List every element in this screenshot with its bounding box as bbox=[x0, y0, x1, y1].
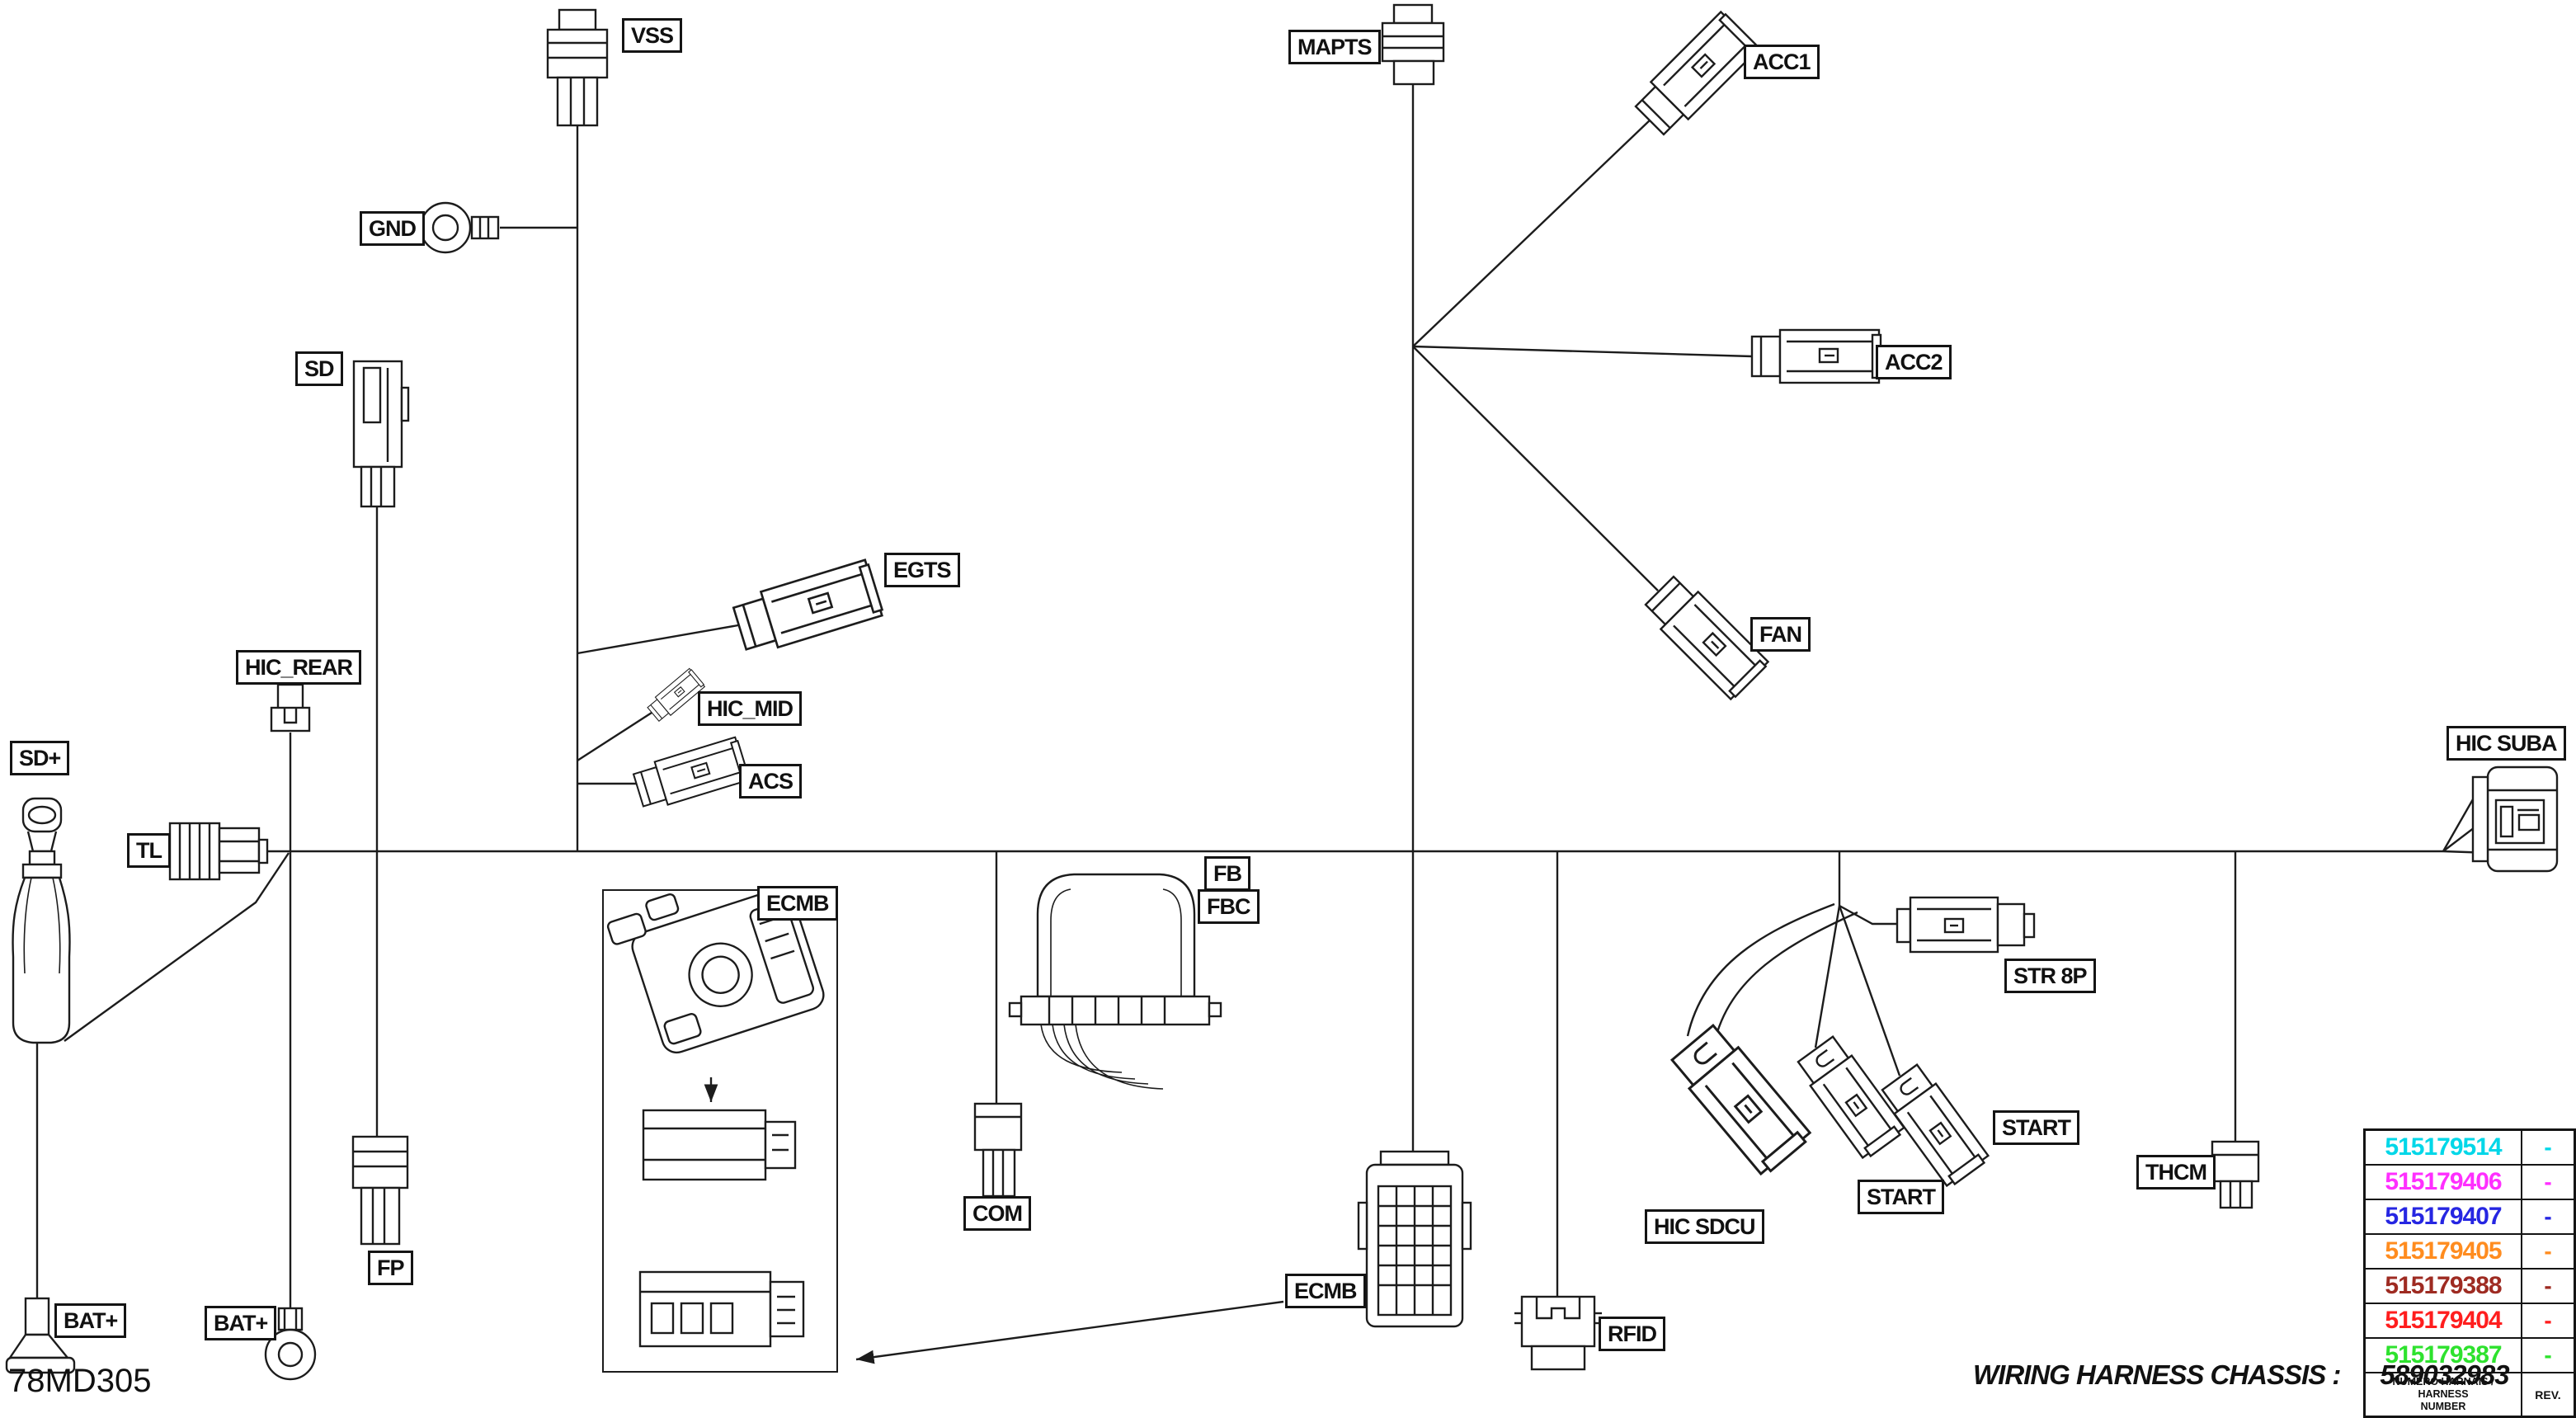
acc1-connector bbox=[1631, 11, 1759, 139]
label-tl: TL bbox=[127, 833, 171, 868]
harness-number: 515179514 bbox=[2366, 1131, 2521, 1164]
label-egts: EGTS bbox=[884, 553, 960, 587]
label-start-1: START bbox=[1993, 1110, 2079, 1145]
parts-table-row: 515179388- bbox=[2366, 1268, 2574, 1303]
rfid-connector bbox=[1514, 1297, 1602, 1369]
ecmb-detail-box bbox=[602, 889, 838, 1373]
wire-sdplus-bus bbox=[64, 853, 289, 1041]
label-acc2: ACC2 bbox=[1876, 345, 1952, 379]
label-ecmb: ECMB bbox=[1285, 1274, 1366, 1308]
sd-plus-terminal bbox=[13, 799, 70, 1043]
wire-sdcu-cable-b bbox=[1714, 912, 1858, 1044]
footer-note: WIRING HARNESS CHASSIS : 589032983 bbox=[1973, 1359, 2509, 1391]
parts-table-row: 515179404- bbox=[2366, 1303, 2574, 1337]
label-sd-plus: SD+ bbox=[10, 741, 69, 775]
wire-fb-cable-4 bbox=[1076, 1025, 1163, 1089]
vss-connector bbox=[548, 10, 607, 125]
ecmb-main-connector bbox=[1359, 1152, 1471, 1326]
harness-number: 515179404 bbox=[2366, 1304, 2521, 1337]
wiring-diagram-page: { "page": { "drawing_code": "78MD305" },… bbox=[0, 0, 2576, 1402]
ecmb-callout-arrow bbox=[856, 1302, 1283, 1359]
label-sd: SD bbox=[295, 351, 343, 386]
rev-header: REV. bbox=[2521, 1373, 2574, 1416]
wire-acc2 bbox=[1413, 346, 1752, 356]
parts-table-row: 515179406- bbox=[2366, 1164, 2574, 1199]
drawing-code: 78MD305 bbox=[8, 1363, 151, 1400]
label-acc1: ACC1 bbox=[1744, 45, 1820, 79]
label-bat-plus-2: BAT+ bbox=[205, 1306, 276, 1340]
header-line2: NUMBER bbox=[2421, 1401, 2466, 1412]
parts-table-row: 515179405- bbox=[2366, 1233, 2574, 1268]
harness-number: 515179388 bbox=[2366, 1270, 2521, 1303]
acc2-connector bbox=[1752, 330, 1881, 383]
rev-value: - bbox=[2521, 1200, 2574, 1233]
parts-table-row: 515179407- bbox=[2366, 1199, 2574, 1233]
harness-number: 515179405 bbox=[2366, 1235, 2521, 1268]
label-hic-mid: HIC_MID bbox=[698, 691, 802, 726]
wire-sdcu-cable-a bbox=[1688, 904, 1834, 1036]
label-thcm: THCM bbox=[2136, 1155, 2216, 1190]
egts-connector bbox=[732, 559, 884, 656]
gnd-ring-terminal bbox=[421, 203, 498, 252]
wire-fan bbox=[1413, 346, 1658, 591]
parts-table-rows: 515179514-515179406-515179407-515179405-… bbox=[2366, 1131, 2574, 1372]
hic-sdcu-connector bbox=[1668, 1022, 1812, 1177]
label-bat-plus-1: BAT+ bbox=[54, 1303, 126, 1338]
label-vss: VSS bbox=[622, 18, 682, 53]
wire-start-right bbox=[1839, 906, 1900, 1076]
harness-title: WIRING HARNESS CHASSIS : bbox=[1973, 1359, 2340, 1391]
label-fan: FAN bbox=[1750, 617, 1811, 652]
wire-str8p bbox=[1839, 906, 1899, 924]
rev-value: - bbox=[2521, 1131, 2574, 1164]
rev-value: - bbox=[2521, 1339, 2574, 1372]
label-fp: FP bbox=[368, 1251, 413, 1285]
tl-connector bbox=[170, 823, 267, 879]
rev-value: - bbox=[2521, 1166, 2574, 1199]
label-start-2: START bbox=[1858, 1180, 1944, 1214]
label-ecmb-box: ECMB bbox=[757, 886, 838, 921]
harness-drawing bbox=[0, 0, 2576, 1402]
label-gnd: GND bbox=[360, 211, 425, 246]
parts-table-row: 515179514- bbox=[2366, 1131, 2574, 1164]
label-fb: FB bbox=[1204, 856, 1250, 891]
thcm-connector bbox=[2212, 1142, 2258, 1208]
label-com: COM bbox=[963, 1196, 1031, 1231]
label-mapts: MAPTS bbox=[1288, 30, 1381, 64]
wire-acc1 bbox=[1413, 119, 1651, 346]
rev-value: - bbox=[2521, 1304, 2574, 1337]
fb-fusebox bbox=[1010, 874, 1221, 1025]
label-hic-suba: HIC SUBA bbox=[2446, 726, 2566, 761]
acs-connector bbox=[632, 737, 750, 812]
str-8p-connector bbox=[1897, 897, 2034, 952]
harness-number: 515179406 bbox=[2366, 1166, 2521, 1199]
hic-suba-connector bbox=[2473, 767, 2557, 871]
label-hic-sdcu: HIC SDCU bbox=[1645, 1209, 1764, 1244]
harness-number: 515179407 bbox=[2366, 1200, 2521, 1233]
mapts-connector bbox=[1382, 5, 1443, 84]
label-str-8p: STR 8P bbox=[2004, 959, 2096, 993]
hic-mid-connector bbox=[646, 668, 705, 723]
label-acs: ACS bbox=[739, 764, 802, 799]
sd-connector bbox=[354, 361, 408, 506]
rev-value: - bbox=[2521, 1270, 2574, 1303]
label-hic-rear: HIC_REAR bbox=[236, 650, 361, 685]
wire-egts bbox=[577, 625, 738, 653]
hic-rear-connector bbox=[271, 685, 309, 731]
harness-chassis-number: 589032983 bbox=[2380, 1359, 2508, 1391]
label-fbc: FBC bbox=[1198, 889, 1260, 924]
rev-value: - bbox=[2521, 1235, 2574, 1268]
com-connector bbox=[975, 1104, 1021, 1196]
wire-hic-mid bbox=[577, 713, 652, 761]
fp-connector bbox=[353, 1137, 407, 1244]
label-rfid: RFID bbox=[1599, 1317, 1665, 1351]
